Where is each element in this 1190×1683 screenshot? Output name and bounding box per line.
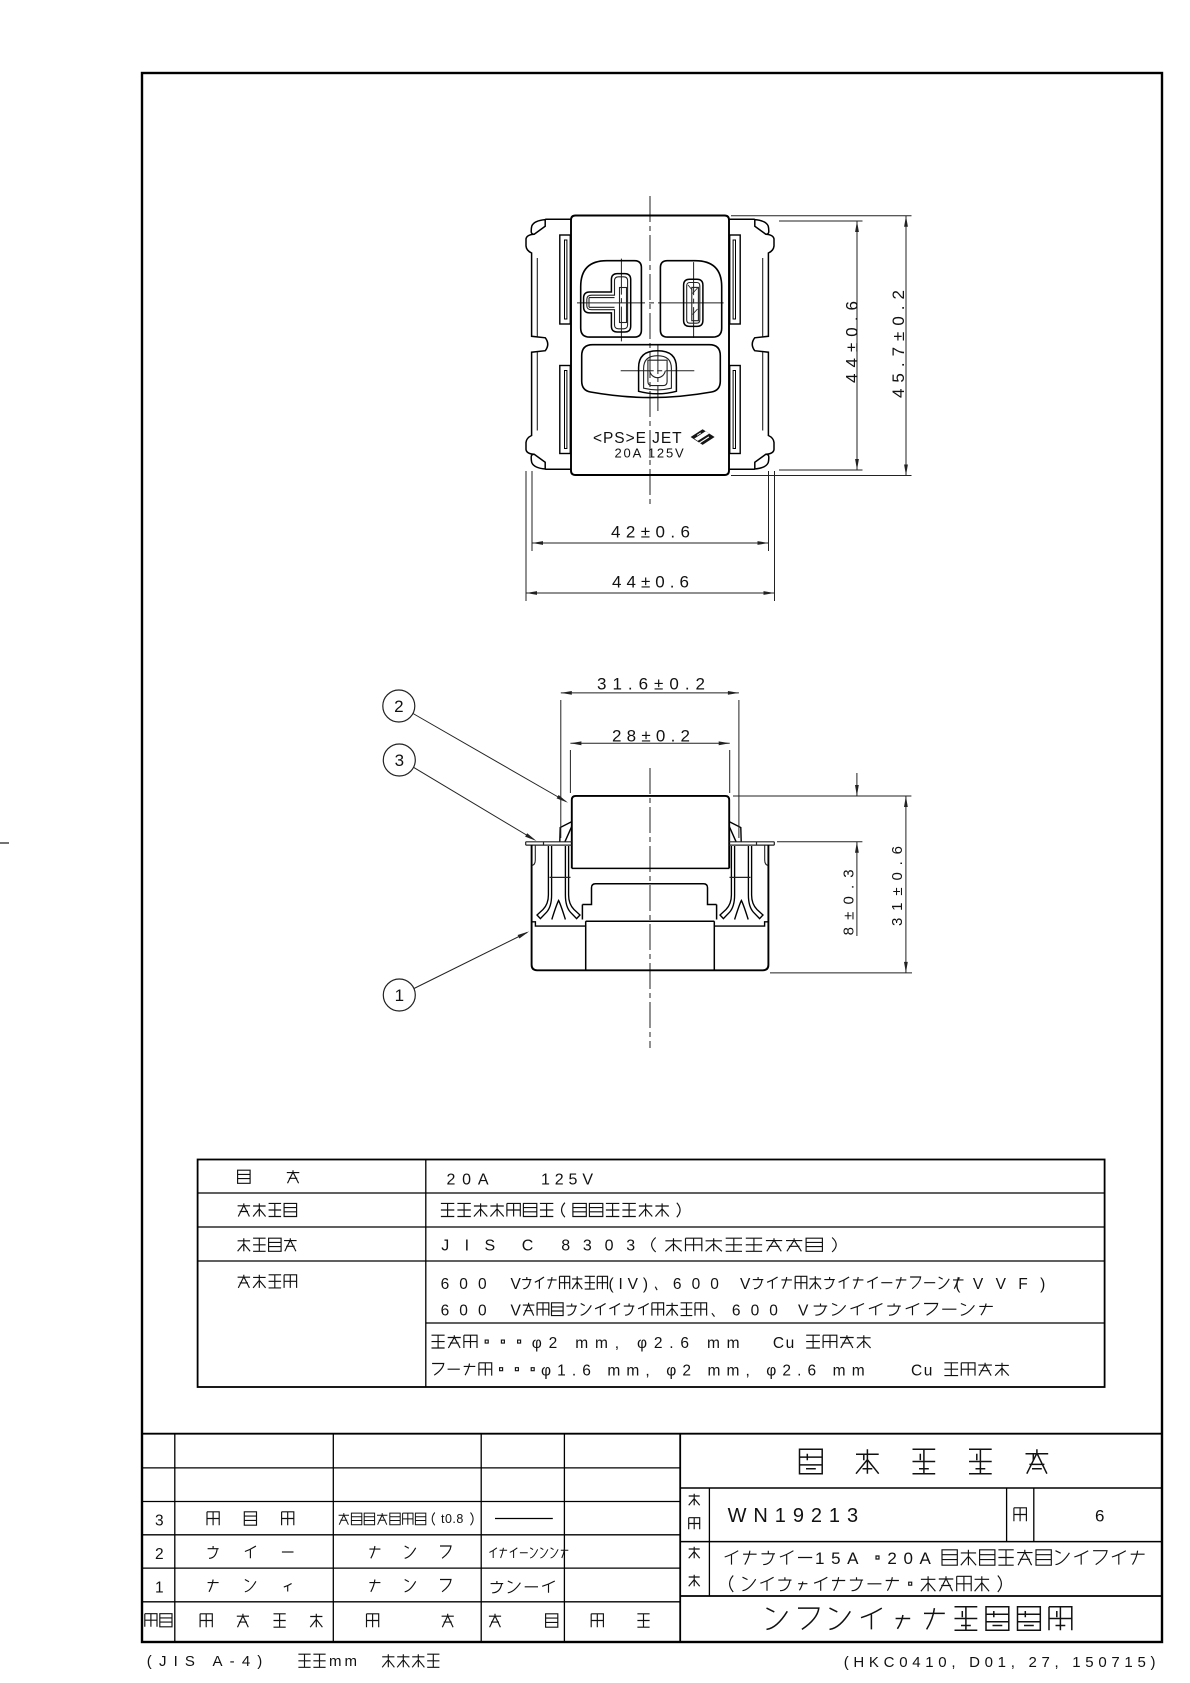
svg-text:600: 600	[732, 1303, 785, 1320]
svg-text:125V: 125V	[541, 1172, 597, 1189]
svg-text:V: V	[511, 1276, 522, 1293]
svg-text:2: 2	[155, 1546, 164, 1563]
svg-text:mm: mm	[329, 1653, 360, 1670]
svg-text:20A 125V: 20A 125V	[615, 446, 686, 461]
svg-text:Cu: Cu	[911, 1363, 934, 1380]
svg-text:600: 600	[673, 1276, 726, 1293]
svg-text:φ2 mm, φ2.6 mm: φ2 mm, φ2.6 mm	[532, 1335, 743, 1352]
svg-text:WN19213: WN19213	[728, 1505, 866, 1527]
svg-text:1: 1	[155, 1580, 164, 1597]
svg-text:(JIS A-4): (JIS A-4)	[147, 1653, 267, 1670]
svg-text:C: C	[522, 1238, 534, 1255]
svg-text:(HKC0410, D01, 27, 150715): (HKC0410, D01, 27, 150715)	[844, 1654, 1159, 1671]
svg-text:(IV): (IV)	[609, 1276, 651, 1293]
svg-text:V: V	[511, 1303, 522, 1320]
svg-text:V: V	[740, 1276, 751, 1293]
svg-text:6: 6	[1095, 1507, 1104, 1526]
svg-text:1: 1	[395, 986, 404, 1005]
svg-text:JIS: JIS	[441, 1238, 503, 1255]
svg-text:15A: 15A	[815, 1549, 863, 1568]
svg-text:3: 3	[155, 1513, 164, 1530]
svg-text:2: 2	[394, 697, 403, 716]
svg-text:t0.8: t0.8	[441, 1512, 464, 1526]
svg-text:600: 600	[441, 1276, 494, 1293]
svg-text:Cu: Cu	[773, 1335, 796, 1352]
svg-text:3: 3	[395, 751, 404, 770]
svg-text:20A: 20A	[887, 1549, 935, 1568]
svg-text:20A: 20A	[447, 1172, 494, 1189]
svg-text:<PS>E JET: <PS>E JET	[593, 430, 683, 447]
svg-text:600: 600	[441, 1303, 494, 1320]
svg-text:V: V	[798, 1303, 809, 1320]
